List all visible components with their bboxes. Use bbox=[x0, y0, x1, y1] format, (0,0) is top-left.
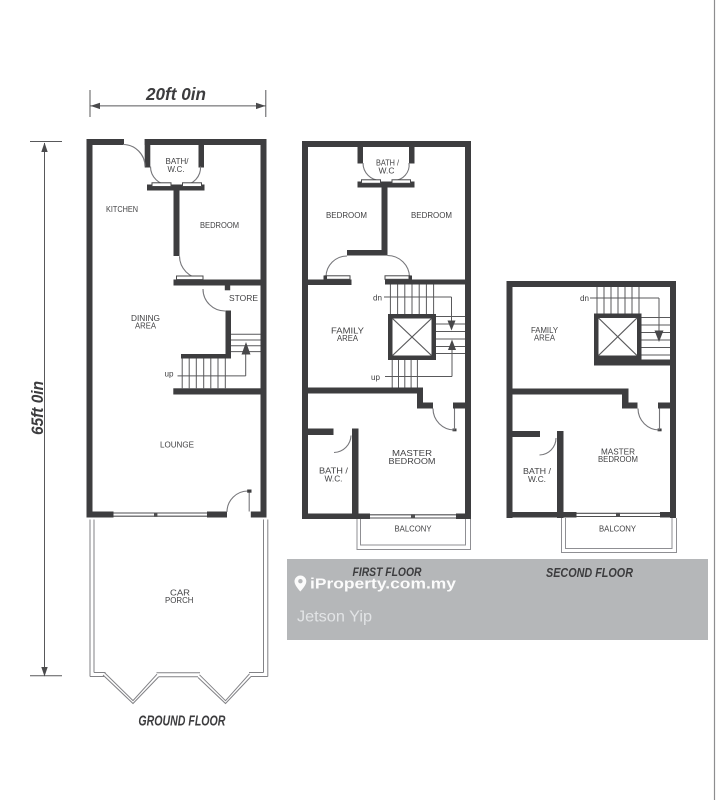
svg-text:GROUND FLOOR: GROUND FLOOR bbox=[138, 713, 225, 730]
svg-text:BEDROOM: BEDROOM bbox=[389, 456, 436, 466]
svg-text:W.C.: W.C. bbox=[168, 164, 185, 174]
svg-text:W.C: W.C bbox=[379, 166, 395, 176]
svg-text:Jetson Yip: Jetson Yip bbox=[297, 609, 372, 626]
svg-text:iProperty.com.my: iProperty.com.my bbox=[310, 577, 456, 593]
svg-text:BEDROOM: BEDROOM bbox=[326, 210, 367, 220]
svg-text:dn: dn bbox=[580, 293, 589, 303]
svg-text:up: up bbox=[165, 369, 174, 379]
svg-text:BALCONY: BALCONY bbox=[599, 524, 636, 534]
svg-text:BEDROOM: BEDROOM bbox=[598, 454, 638, 464]
svg-text:BEDROOM: BEDROOM bbox=[411, 210, 452, 220]
svg-text:AREA: AREA bbox=[337, 333, 358, 343]
svg-text:W.C.: W.C. bbox=[325, 474, 343, 484]
svg-text:LOUNGE: LOUNGE bbox=[160, 439, 194, 449]
svg-text:STORE: STORE bbox=[229, 293, 258, 303]
svg-text:SECOND FLOOR: SECOND FLOOR bbox=[546, 565, 633, 580]
svg-text:up: up bbox=[371, 372, 380, 382]
svg-text:BEDROOM: BEDROOM bbox=[200, 220, 239, 230]
svg-text:20ft 0in: 20ft 0in bbox=[145, 84, 206, 104]
svg-text:AREA: AREA bbox=[534, 333, 555, 343]
svg-text:W.C.: W.C. bbox=[528, 474, 546, 484]
svg-text:KITCHEN: KITCHEN bbox=[106, 204, 138, 214]
svg-text:dn: dn bbox=[373, 293, 382, 303]
svg-text:AREA: AREA bbox=[135, 321, 156, 331]
svg-text:65ft 0in: 65ft 0in bbox=[28, 381, 47, 435]
svg-text:PORCH: PORCH bbox=[165, 595, 194, 605]
svg-text:BALCONY: BALCONY bbox=[395, 524, 432, 534]
